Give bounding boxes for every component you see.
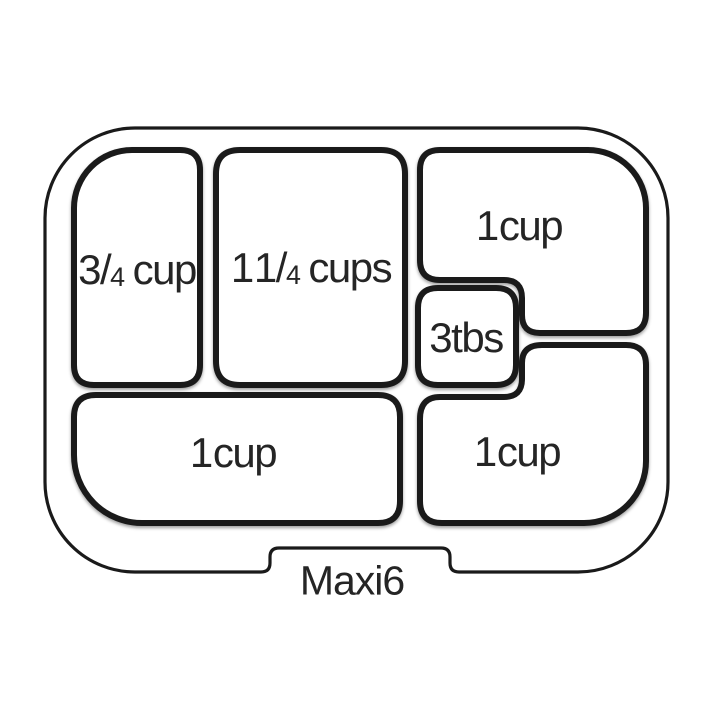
- tray-diagram: 3/4cup 1 1/4cups 1 cup 3tbs 1 cup 1 cup …: [0, 0, 720, 720]
- fraction-whole: 3: [78, 246, 100, 293]
- label-bottom-left-capacity: 1 cup: [190, 432, 276, 474]
- label-bottom-right-capacity: 1 cup: [474, 431, 560, 473]
- unit-text: cup: [133, 246, 196, 293]
- fraction-slash: /: [100, 246, 110, 293]
- fraction-denominator: 4: [286, 260, 299, 290]
- fraction-slash: /: [276, 244, 286, 291]
- label-center-small-capacity: 3tbs: [429, 317, 502, 359]
- unit-text: cups: [308, 244, 391, 291]
- label-top-middle-capacity: 1 1/4cups: [231, 247, 391, 289]
- label-top-right-capacity: 1 cup: [476, 205, 562, 247]
- label-top-left-capacity: 3/4cup: [78, 249, 196, 291]
- fraction-denominator: 4: [110, 262, 123, 292]
- tray-outline-drawing: [0, 0, 720, 720]
- fraction-whole: 1 1: [231, 244, 276, 291]
- product-name-label: Maxi6: [300, 561, 404, 602]
